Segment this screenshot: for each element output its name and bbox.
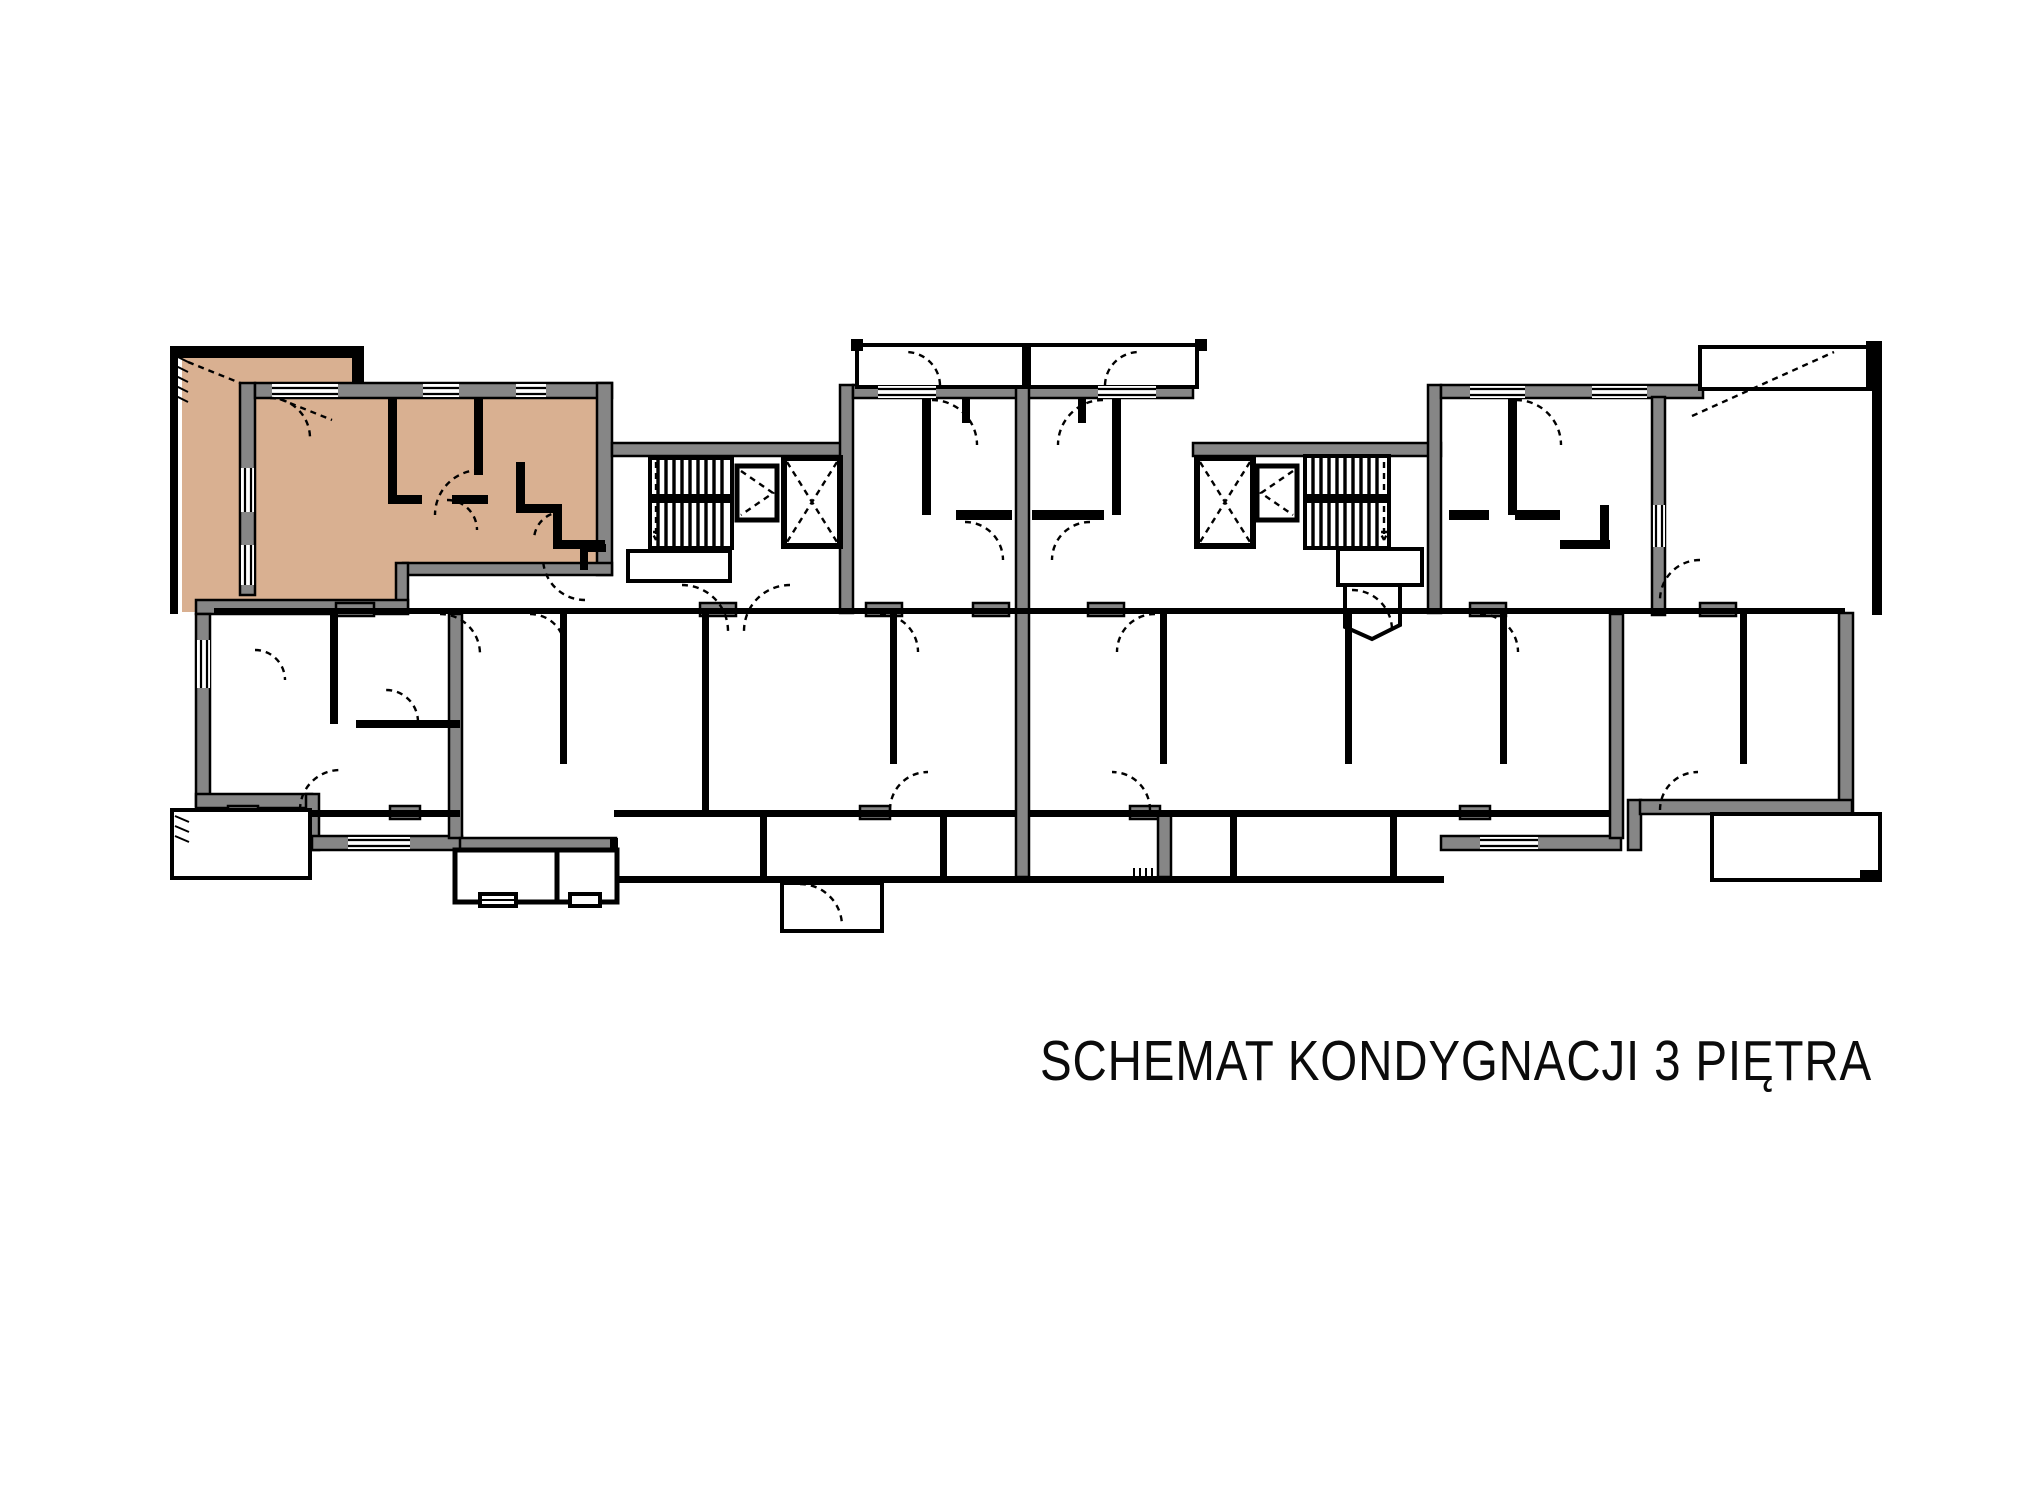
entrance-porch-center	[782, 883, 882, 931]
stairwell-left	[650, 458, 732, 548]
balcony-bottom-left	[172, 810, 310, 878]
loggia-lower-left-a	[455, 850, 557, 906]
floor-plan-canvas: SCHEMAT KONDYGNACJI 3 PIĘTRA	[0, 0, 2031, 1505]
elevator-left-large	[784, 458, 840, 546]
elevator-right-small	[1257, 466, 1297, 520]
elevator-left-small	[737, 466, 777, 520]
balcony-bottom-right	[1712, 814, 1880, 880]
elevator-right-large	[1197, 458, 1253, 546]
balcony-top-center-left	[851, 339, 1025, 387]
stairwell-right	[1305, 456, 1389, 548]
floor-plan-page: SCHEMAT KONDYGNACJI 3 PIĘTRA	[0, 0, 2031, 1505]
loggia-lower-left-b	[557, 850, 617, 906]
floor-schematic-title: SCHEMAT KONDYGNACJI 3 PIĘTRA	[1040, 1029, 1872, 1093]
balcony-top-right	[1692, 341, 1882, 416]
